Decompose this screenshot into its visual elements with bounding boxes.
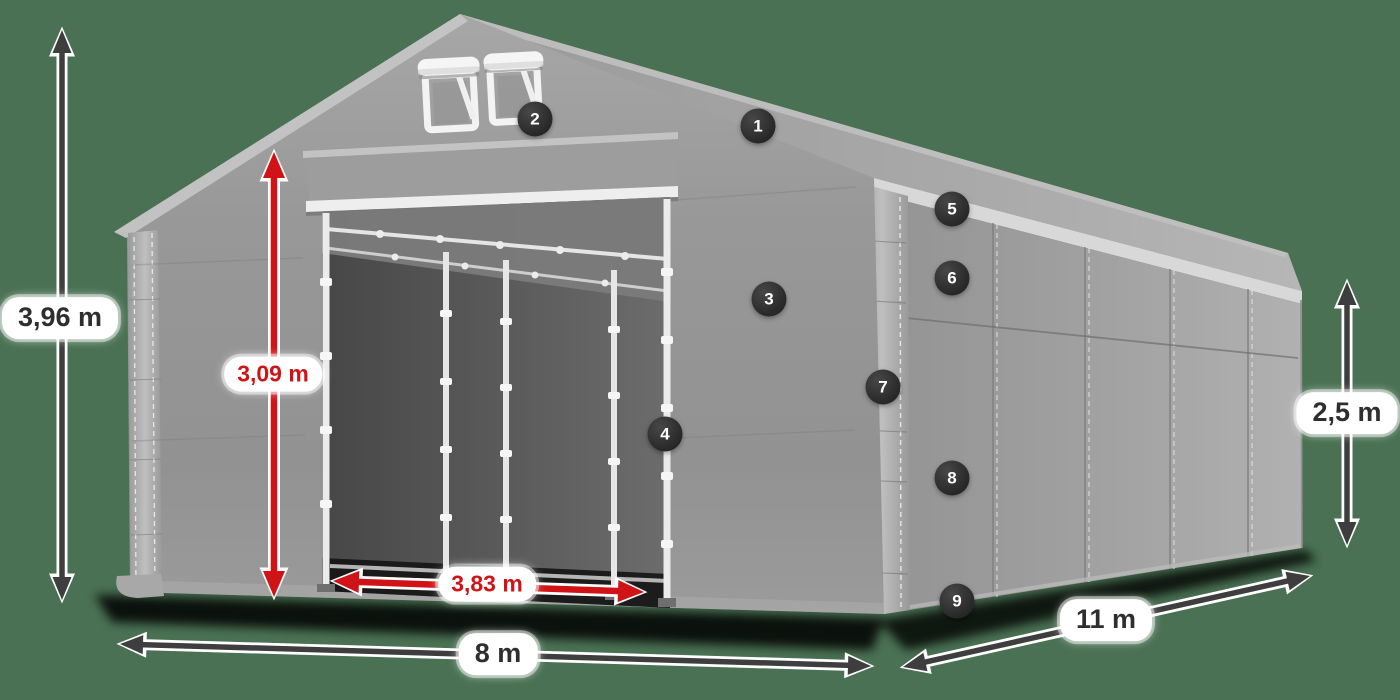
- dimension-label-side-height: 2,5 m: [1296, 392, 1397, 434]
- callout-badge-9[interactable]: 9: [940, 584, 975, 619]
- callout-badge-5[interactable]: 5: [935, 192, 970, 227]
- callout-badge-2[interactable]: 2: [518, 102, 553, 137]
- dimension-label-door-width: 3,83 m: [438, 567, 536, 602]
- callout-badge-6[interactable]: 6: [935, 261, 970, 296]
- dimension-arrows-layer: [0, 0, 1400, 700]
- dimension-label-total-height: 3,96 m: [2, 297, 118, 339]
- callout-badge-1[interactable]: 1: [741, 109, 776, 144]
- dimension-label-door-height: 3,09 m: [224, 357, 322, 392]
- callout-badge-4[interactable]: 4: [648, 417, 683, 452]
- callout-badge-7[interactable]: 7: [866, 370, 901, 405]
- callout-badge-3[interactable]: 3: [752, 282, 787, 317]
- dimension-label-ground-length: 11 m: [1060, 599, 1152, 641]
- dimension-label-ground-width: 8 m: [459, 633, 538, 675]
- tent-dimensions-diagram: 3,96 m3,09 m3,83 m8 m11 m2,5 m 123456789: [0, 0, 1400, 700]
- callout-badge-8[interactable]: 8: [935, 461, 970, 496]
